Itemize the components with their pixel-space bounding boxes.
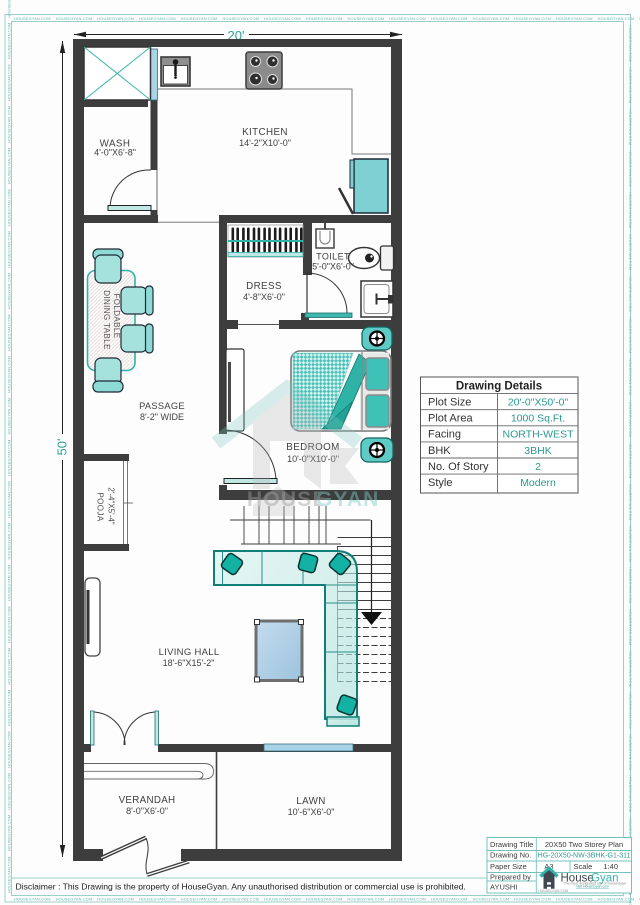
svg-text:Style: Style	[428, 477, 452, 489]
svg-text:8'-2" WIDE: 8'-2" WIDE	[140, 412, 184, 422]
svg-text:NORTH-WEST: NORTH-WEST	[503, 429, 575, 441]
svg-text:DINING TABLE: DINING TABLE	[102, 290, 111, 350]
svg-text:4'-0"X6'-8": 4'-0"X6'-8"	[94, 148, 136, 158]
svg-text:8'-0"X6'-0": 8'-0"X6'-0"	[126, 806, 168, 816]
svg-text:AYUSHI: AYUSHI	[490, 882, 517, 891]
svg-text:Scale: Scale	[574, 862, 593, 871]
svg-text:10'-6"X6'-0": 10'-6"X6'-0"	[288, 807, 335, 817]
svg-text:Prepared by: Prepared by	[490, 872, 531, 881]
svg-text:1000 Sq.Ft.: 1000 Sq.Ft.	[511, 413, 565, 425]
svg-text:Facing: Facing	[428, 429, 461, 441]
svg-text:1:40: 1:40	[603, 862, 618, 871]
svg-text:18'-6"X15'-2": 18'-6"X15'-2"	[163, 658, 215, 668]
svg-text:HOUSEGYAN.COM: HOUSEGYAN.COM	[539, 889, 569, 893]
svg-text:Drawing Details: Drawing Details	[456, 381, 542, 393]
svg-text:BHK: BHK	[428, 445, 451, 457]
svg-text:KITCHEN: KITCHEN	[242, 127, 288, 138]
svg-text:GYAN: GYAN	[316, 488, 380, 511]
svg-text:Plot Area: Plot Area	[428, 413, 474, 425]
svg-text:2'-4"X5'-4": 2'-4"X5'-4"	[107, 487, 116, 524]
svg-text:Disclaimer : This Drawing is t: Disclaimer : This Drawing is the propert…	[16, 882, 466, 892]
svg-text:No. Of Story: No. Of Story	[428, 461, 489, 473]
svg-text:LIVING HALL: LIVING HALL	[159, 647, 220, 658]
svg-text:14'-2"X10'-0": 14'-2"X10'-0"	[239, 138, 291, 148]
svg-text:3BHK: 3BHK	[524, 445, 551, 457]
svg-text:HOUSEGYAN.COM HOUSEGYAN.COM: HOUSEGYAN.COM HOUSEGYAN.COM HOUSEGYAN.CO…	[7, 0, 11, 893]
svg-text:Drawing Title: Drawing Title	[490, 840, 533, 849]
svg-text:Plot Size: Plot Size	[428, 397, 471, 409]
svg-text:HG-20X50-NW-3BHK-G1-311: HG-20X50-NW-3BHK-G1-311	[538, 853, 631, 860]
svg-text:visit HouseGyan.com: visit HouseGyan.com	[576, 885, 609, 889]
svg-text:4'-8"X6'-0": 4'-8"X6'-0"	[243, 292, 285, 302]
svg-text:HOUSEGYAN.COM HOUSEGYAN.COM: HOUSEGYAN.COM HOUSEGYAN.COM HOUSEGYAN.CO…	[628, 25, 632, 905]
svg-text:5'-0"X6'-0": 5'-0"X6'-0"	[312, 262, 354, 272]
svg-text:HOUSEGYAN.COM HOUSEGYAN.COM: HOUSEGYAN.COM HOUSEGYAN.COM HOUSEGYAN.CO…	[14, 898, 640, 902]
svg-text:Modern: Modern	[520, 477, 556, 489]
svg-text:20X50 Two Storey Plan: 20X50 Two Storey Plan	[545, 840, 623, 849]
svg-text:PASSAGE: PASSAGE	[139, 401, 185, 411]
svg-text:FOLDABLE: FOLDABLE	[112, 294, 121, 339]
svg-text:50': 50'	[55, 439, 70, 456]
svg-text:TOILET: TOILET	[316, 252, 350, 262]
svg-text:VERANDAH: VERANDAH	[119, 795, 176, 806]
svg-text:2: 2	[535, 461, 541, 473]
svg-text:DRESS: DRESS	[246, 281, 282, 292]
svg-text:HOUSEGYAN.COM HOUSEGYAN.COM: HOUSEGYAN.COM HOUSEGYAN.COM HOUSEGYAN.CO…	[14, 17, 640, 21]
svg-text:POOJA: POOJA	[96, 492, 105, 521]
svg-text:Drawing No.: Drawing No.	[490, 851, 531, 860]
svg-text:Paper Size: Paper Size	[490, 862, 527, 871]
svg-text:20'-0"X50'-0": 20'-0"X50'-0"	[508, 397, 569, 409]
svg-text:LAWN: LAWN	[296, 796, 325, 807]
